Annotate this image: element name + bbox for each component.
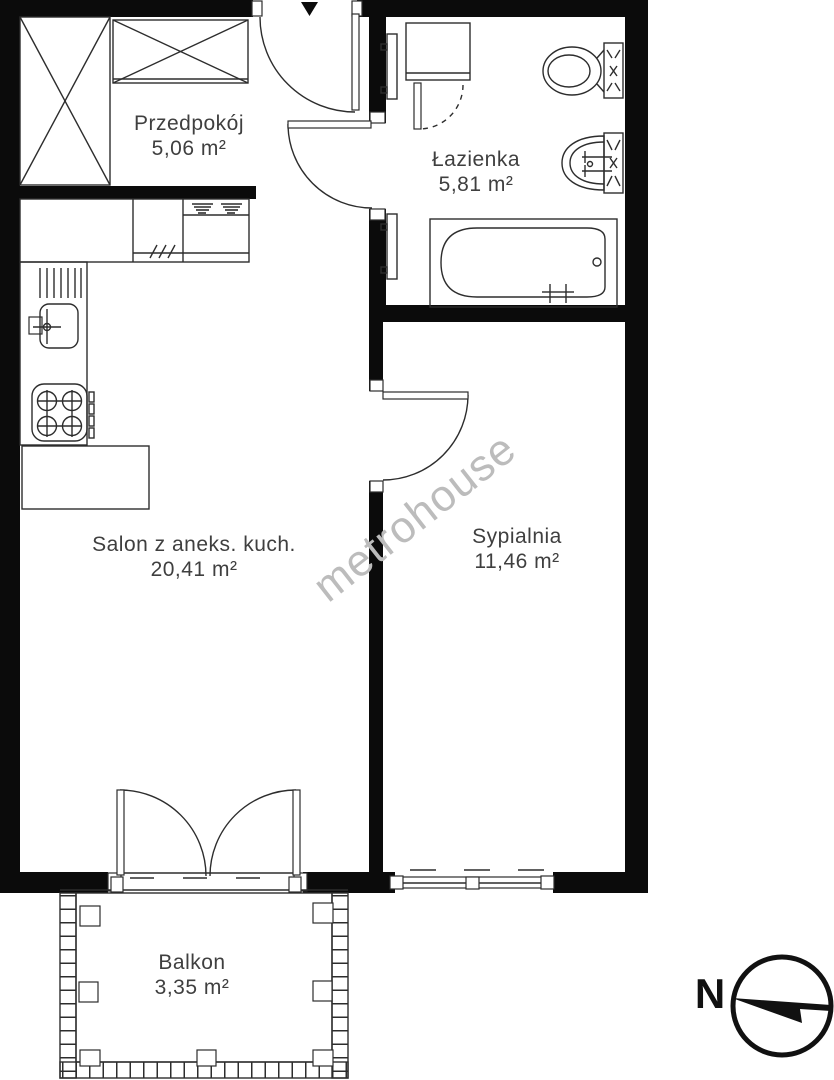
compass: N [695, 957, 831, 1055]
bathroom-sink [562, 133, 623, 193]
compass-north-label: N [695, 970, 725, 1017]
dishwasher-marks [150, 245, 175, 258]
entrance-arrow-icon [301, 2, 318, 16]
stove [32, 384, 94, 441]
kitchen-appliance-vents [192, 204, 242, 213]
room-label-lazienka: Łazienka 5,81 m² [432, 147, 520, 197]
wall-top-left [0, 0, 253, 17]
balcony-door-arc-left [120, 790, 206, 876]
room-label-sypialnia: Sypialnia 11,46 m² [472, 524, 562, 574]
room-name: Łazienka [432, 147, 520, 172]
bedroom-window [390, 870, 554, 889]
wall-left [0, 0, 20, 893]
entrance-frame-left [252, 1, 262, 16]
wall-bottom-right [553, 872, 648, 893]
room-label-salon: Salon z aneks. kuch. 20,41 m² [92, 532, 296, 582]
room-name: Salon z aneks. kuch. [92, 532, 296, 557]
room-area: 3,35 m² [155, 975, 230, 1000]
north-needle-icon [732, 998, 831, 1023]
washing-machine [406, 23, 470, 129]
bathtub [430, 219, 617, 307]
balcony-door-leaf-left [117, 790, 124, 875]
room-name: Sypialnia [472, 524, 562, 549]
bathroom-door-leaf [288, 121, 371, 128]
balcony-door-leaf-right [293, 790, 300, 875]
room-area: 5,06 m² [134, 136, 244, 161]
room-name: Przedpokój [134, 111, 244, 136]
bedroom-door-frame-top [370, 380, 383, 391]
kitchen-peninsula [22, 446, 149, 509]
bathroom-door-arc [288, 124, 372, 208]
room-area: 11,46 m² [472, 549, 562, 574]
entrance-door-leaf [352, 14, 359, 110]
wall-right [625, 0, 648, 893]
entrance-door [260, 14, 359, 112]
wardrobe-wide [113, 20, 248, 83]
wall-bath-left-upper [369, 17, 386, 123]
room-area: 20,41 m² [92, 557, 296, 582]
room-name: Balkon [155, 950, 230, 975]
wall-hall-bottom [0, 186, 256, 199]
wardrobe-tall [20, 17, 110, 185]
bedroom-door-frame-bottom [370, 481, 383, 492]
toilet [543, 43, 623, 98]
balcony-door-arc-right [210, 790, 296, 876]
bedroom-door-leaf [383, 392, 468, 399]
room-label-balkon: Balkon 3,35 m² [155, 950, 230, 1000]
bath-door-frame-bottom [370, 209, 385, 220]
wall-top-right [357, 0, 648, 17]
entrance-door-arc [260, 17, 355, 112]
kitchen-counter-top [20, 199, 249, 262]
bathroom-door [288, 121, 372, 208]
room-area: 5,81 m² [432, 172, 520, 197]
room-label-przedpokoj: Przedpokój 5,06 m² [134, 111, 244, 161]
floor-plan-page: N Przedpokój 5,06 m² Łazienka 5,81 m² Sa… [0, 0, 834, 1080]
balcony-door [117, 790, 300, 878]
dish-drainer [40, 268, 81, 298]
bath-door-frame-top [370, 112, 385, 123]
kitchen-sink [29, 304, 78, 348]
